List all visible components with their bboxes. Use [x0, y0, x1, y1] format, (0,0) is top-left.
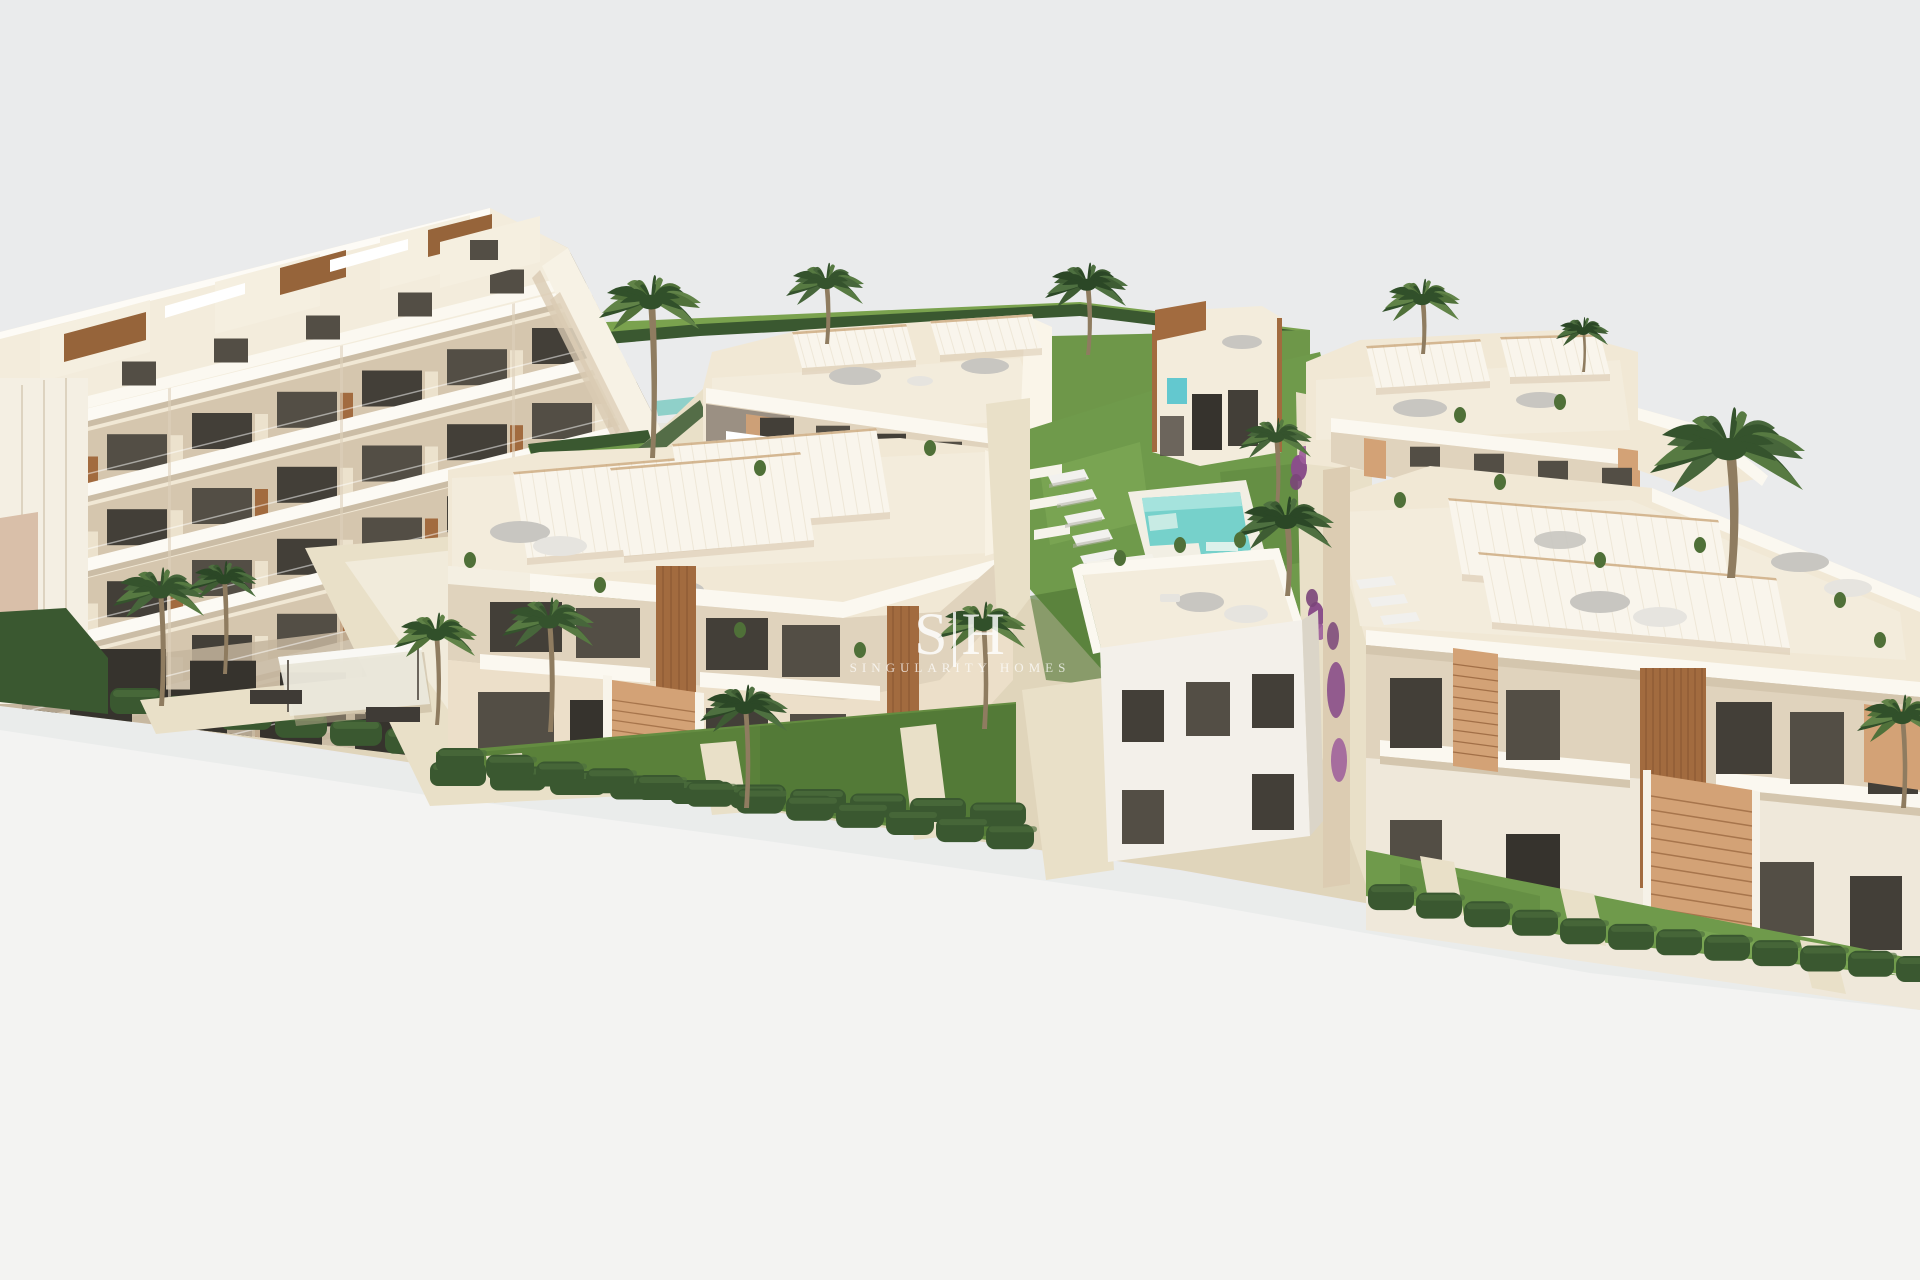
svg-text:S|H: S|H	[914, 601, 1006, 667]
svg-text:SINGULARITY HOMES: SINGULARITY HOMES	[850, 660, 1071, 675]
